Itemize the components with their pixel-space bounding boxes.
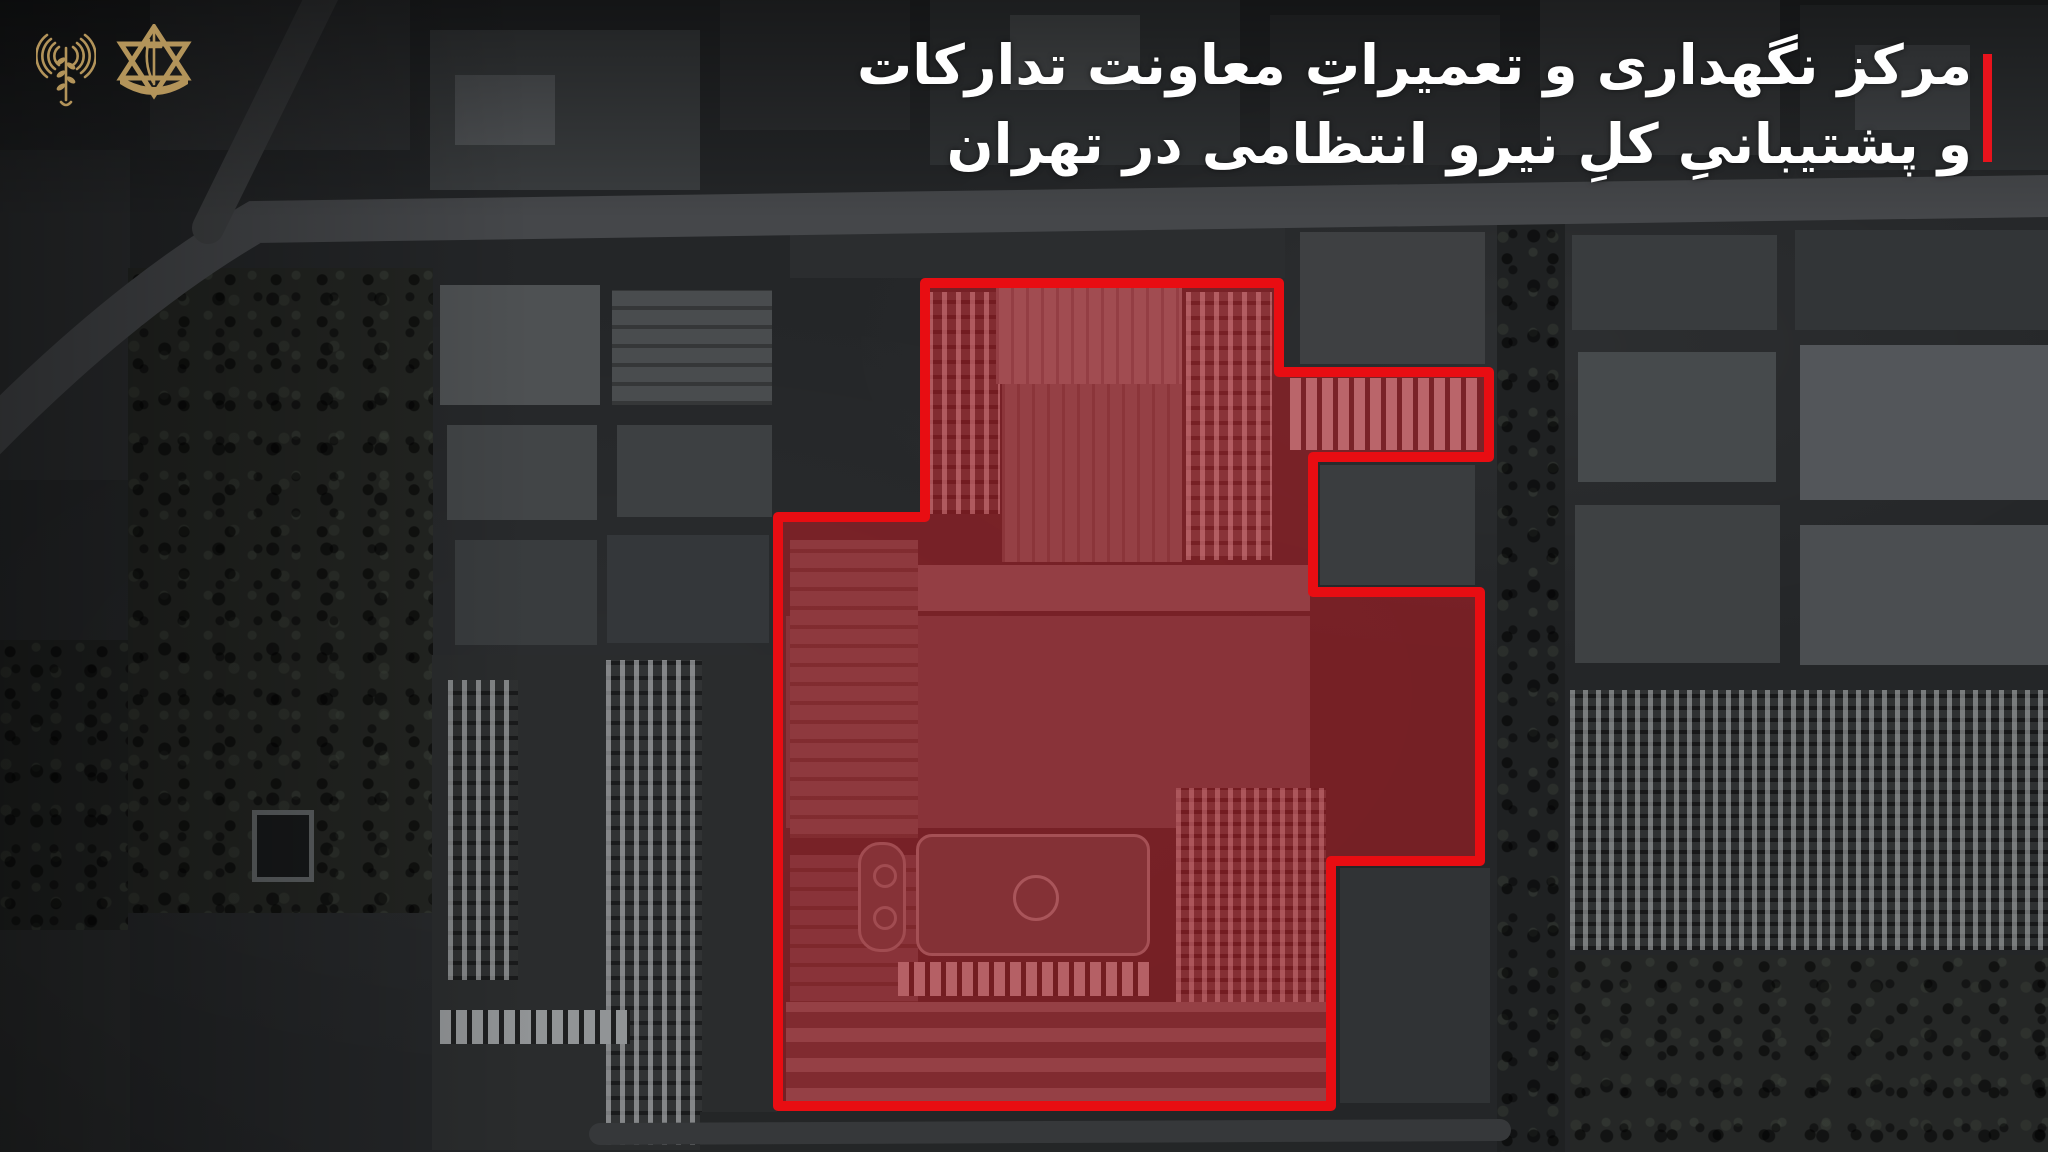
target-compound-outline	[778, 283, 1489, 1106]
headline-accent-bar	[1983, 54, 1992, 162]
north-branch-road	[208, 0, 330, 228]
infographic-canvas: مرکز نگهداری و تعمیراتِ معاونت تدارکات و…	[0, 0, 2048, 1152]
south-service-road	[600, 1130, 1500, 1134]
headline: مرکز نگهداری و تعمیراتِ معاونت تدارکات و…	[857, 26, 1972, 184]
headline-line-1: مرکز نگهداری و تعمیراتِ معاونت تدارکات	[857, 26, 1972, 105]
headline-line-2: و پشتیبانیِ کلِ نیرو انتظامی در تهران	[857, 105, 1972, 184]
idf-spokesperson-radio-waves-icon	[36, 28, 96, 112]
idf-star-of-david-icon	[110, 24, 198, 104]
